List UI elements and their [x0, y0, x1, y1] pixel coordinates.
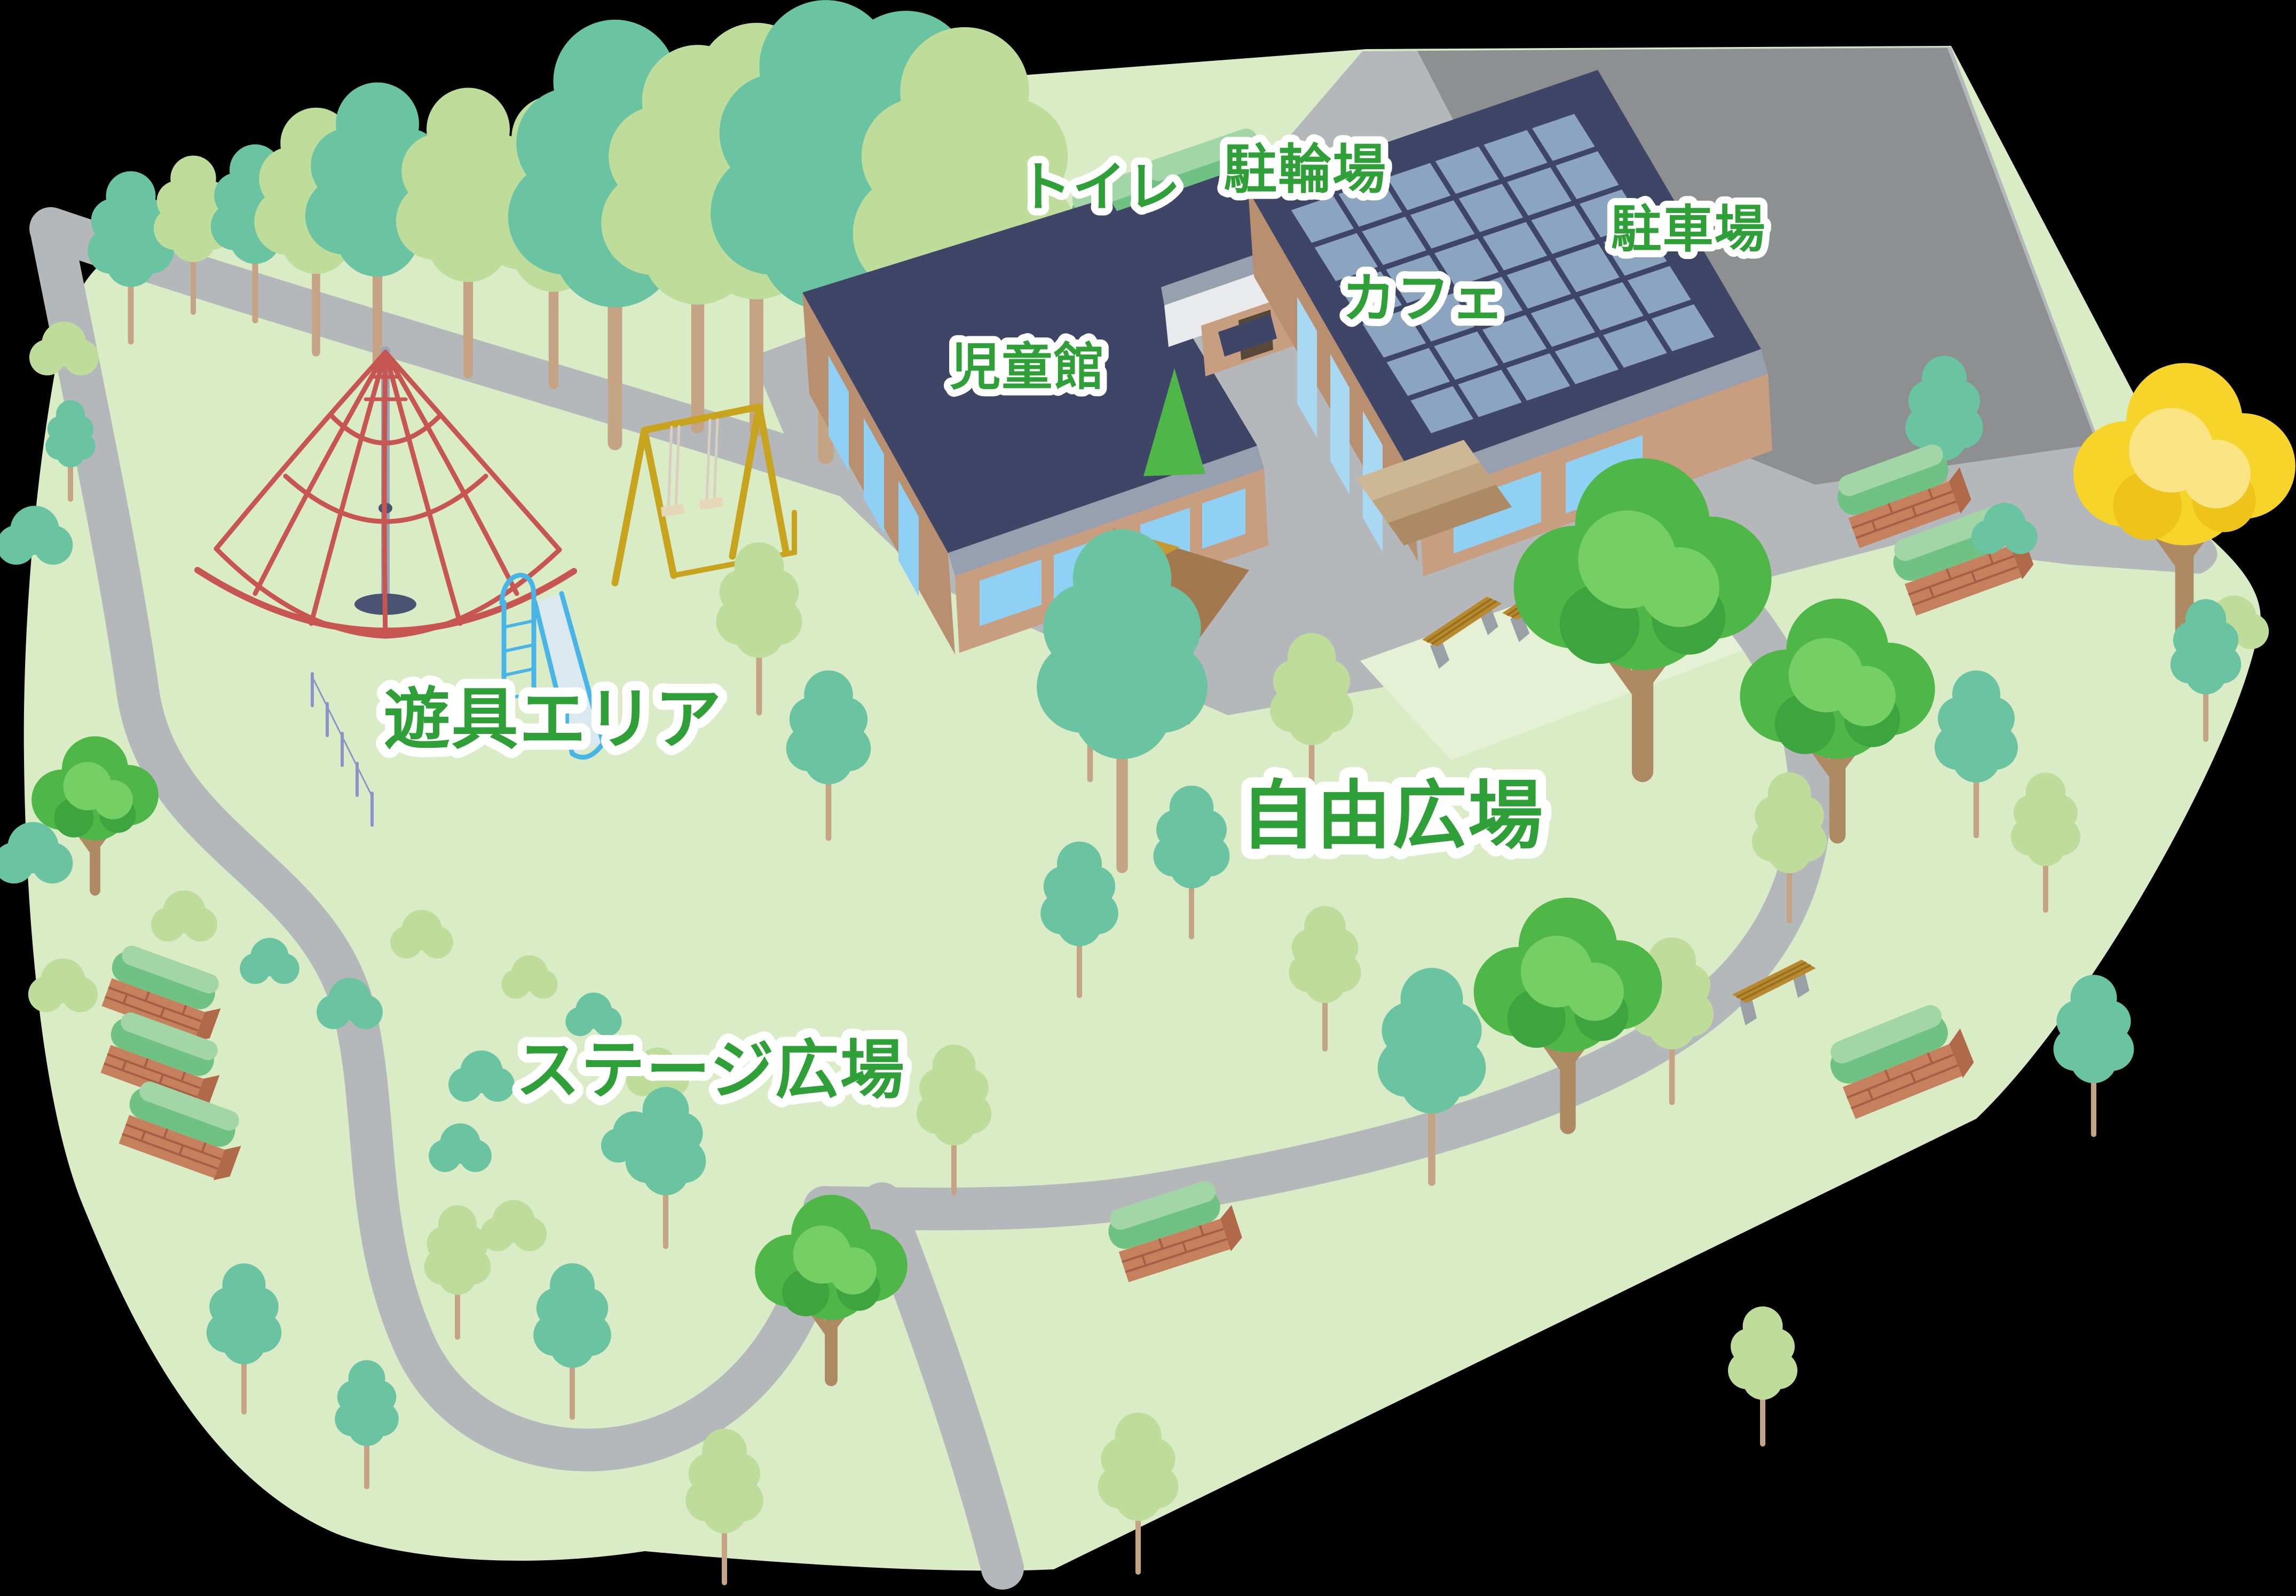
tree-canopy	[1057, 902, 1102, 946]
tree-canopy	[170, 216, 216, 262]
tree-canopy	[735, 609, 784, 658]
tree-canopy	[2026, 826, 2066, 866]
bush-blob	[501, 970, 530, 999]
bush-blob	[565, 1007, 594, 1036]
bush-blob	[528, 970, 557, 999]
bush-blob	[459, 1140, 492, 1172]
bush-blob	[593, 1007, 621, 1036]
park-map-canvas: トイレ 駐輪場 駐車場 カフェ 児童館 遊具エリア 自由広場 ステージ広場	[0, 0, 2296, 1596]
tree-canopy	[1768, 830, 1811, 873]
tree-canopy	[56, 439, 85, 468]
tree-canopy	[1401, 1051, 1463, 1113]
label-car-parking: 駐車場	[1611, 201, 1766, 258]
climber-rope	[384, 352, 385, 636]
label-childrens-hall: 児童館	[950, 339, 1105, 396]
tree-canopy	[1639, 547, 1719, 627]
label-cafe: カフェ	[1342, 269, 1505, 329]
bush-blob	[29, 339, 65, 375]
tree-canopy	[93, 780, 133, 819]
tree-canopy	[830, 1247, 877, 1294]
tree-canopy	[2185, 653, 2227, 694]
tree-canopy	[349, 1409, 385, 1446]
label-bicycle-parking: 駐輪場	[1224, 140, 1387, 200]
tree	[1728, 1307, 1797, 1444]
tree-canopy	[2071, 1037, 2117, 1083]
bush-blob	[429, 1140, 461, 1172]
tree-canopy	[933, 1102, 976, 1145]
bush-blob	[349, 995, 383, 1029]
bush-blob	[1971, 520, 2006, 554]
tree-canopy	[1952, 734, 2000, 783]
tree-canopy	[1288, 697, 1336, 745]
bush-blob	[28, 976, 64, 1012]
tree-canopy	[1170, 844, 1214, 889]
bush-blob	[512, 1217, 547, 1251]
label-stage-plaza: ステージ広場	[516, 1034, 905, 1106]
tree-canopy	[223, 1321, 266, 1364]
tree-canopy	[804, 736, 853, 785]
bush-blob	[448, 1068, 483, 1102]
tree-canopy	[1743, 1360, 1783, 1400]
tree-canopy	[1073, 661, 1172, 760]
label-toilet: トイレ	[1018, 157, 1181, 217]
bush-blob	[183, 907, 217, 942]
tree-canopy	[1304, 961, 1346, 1003]
bush-blob	[421, 926, 453, 959]
bush-blob	[151, 907, 185, 942]
bush-blob	[2003, 520, 2038, 554]
tree-canopy	[2182, 440, 2251, 509]
bush-blob	[240, 953, 271, 984]
bush-blob	[63, 339, 99, 375]
tree-canopy	[1566, 962, 1624, 1021]
label-free-plaza: 自由広場	[1241, 774, 1544, 858]
tree-canopy	[106, 238, 156, 287]
tree-canopy	[1115, 1474, 1162, 1521]
bush-blob	[34, 525, 73, 565]
bush-blob	[317, 995, 351, 1029]
bush-blob	[480, 1068, 515, 1102]
label-playground-area: 遊具エリア	[384, 683, 723, 757]
bush-blob	[269, 953, 299, 984]
tree-canopy	[438, 1257, 477, 1295]
bush-blob	[390, 926, 423, 959]
tree-canopy	[702, 1489, 747, 1534]
tree-canopy	[550, 1323, 595, 1368]
tree-canopy	[643, 1149, 689, 1195]
bush-blob	[32, 842, 73, 883]
bush-blob	[62, 976, 98, 1012]
tree-canopy	[1835, 666, 1896, 726]
park-map: トイレ 駐輪場 駐車場 カフェ 児童館 遊具エリア 自由広場 ステージ広場	[0, 0, 2296, 1596]
bush-blob	[2233, 613, 2269, 649]
